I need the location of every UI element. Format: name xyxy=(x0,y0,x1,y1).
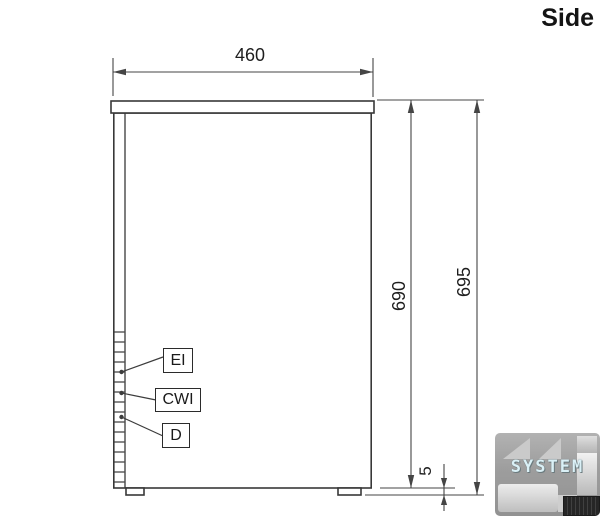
view-title: Side xyxy=(500,4,600,34)
machine-top-panel xyxy=(111,101,374,113)
watermark-logo: SYSTEM xyxy=(495,433,600,516)
dimension-label-total-height: 695 xyxy=(454,252,474,312)
watermark-block xyxy=(498,484,558,512)
watermark-brand-text: SYSTEM xyxy=(495,457,600,477)
connection-label-ei: EI xyxy=(163,348,193,373)
watermark-triangle-icon xyxy=(539,438,561,459)
watermark-block xyxy=(577,436,597,453)
connection-label-cwi-text: CWI xyxy=(162,391,193,409)
dimension-label-foot-gap: 5 xyxy=(416,459,436,483)
connection-label-ei-text: EI xyxy=(170,352,185,370)
watermark-triangle-icon xyxy=(503,438,530,459)
watermark-badge xyxy=(563,496,600,516)
connection-label-d-text: D xyxy=(170,427,182,445)
connection-label-cwi: CWI xyxy=(155,388,201,412)
dimension-total-height-695 xyxy=(474,100,480,495)
technical-drawing-page: Side 460 690 695 5 EI CWI D SYSTEM xyxy=(0,0,600,522)
dimension-label-body-height: 690 xyxy=(389,266,409,326)
foot-right xyxy=(338,488,361,495)
foot-left xyxy=(126,488,144,495)
connection-label-d: D xyxy=(162,423,190,448)
dimension-label-width: 460 xyxy=(220,45,280,65)
